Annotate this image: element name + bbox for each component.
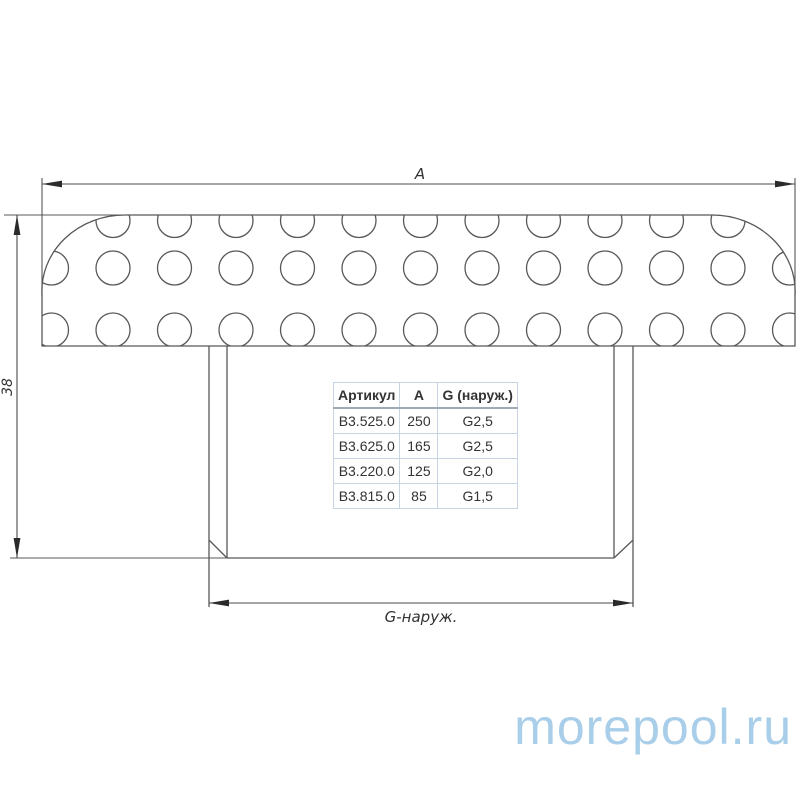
strainer-hole [527, 313, 561, 347]
table-cell: B3.625.0 [334, 434, 400, 459]
table-cell: B3.525.0 [334, 408, 400, 434]
dim-a-label: A [414, 165, 425, 183]
strainer-hole [588, 313, 622, 347]
strainer-hole [588, 251, 622, 285]
strainer-hole [711, 204, 745, 238]
strainer-hole [527, 204, 561, 238]
dim-38-extension-lines [4, 215, 227, 558]
table-row: B3.625.0165G2,5 [334, 434, 518, 459]
dim-38-label: 38 [0, 378, 16, 396]
strainer-hole [650, 251, 684, 285]
strainer-hole [281, 251, 315, 285]
table-header-cell: G (наруж.) [438, 383, 518, 409]
table-row: B3.525.0250G2,5 [334, 408, 518, 434]
strainer-hole [711, 313, 745, 347]
table-cell: G2,0 [438, 459, 518, 484]
table-cell: 250 [400, 408, 438, 434]
strainer-hole [35, 313, 69, 347]
table-row: B3.220.0125G2,0 [334, 459, 518, 484]
table-cell: G2,5 [438, 408, 518, 434]
dimensions-table: АртикулАG (наруж.) B3.525.0250G2,5B3.625… [333, 382, 518, 509]
dim-g-label: G-наруж. [385, 608, 458, 626]
strainer-holes-group [35, 204, 800, 348]
table-header-cell: Артикул [334, 383, 400, 409]
strainer-hole [96, 204, 130, 238]
table-body: B3.525.0250G2,5B3.625.0165G2,5B3.220.012… [334, 408, 518, 509]
strainer-hole [35, 204, 69, 238]
table-row: B3.815.085G1,5 [334, 484, 518, 509]
strainer-hole [342, 204, 376, 238]
strainer-hole [158, 204, 192, 238]
strainer-hole [342, 313, 376, 347]
strainer-hole [711, 251, 745, 285]
table-header-row: АртикулАG (наруж.) [334, 383, 518, 409]
table-header-cell: А [400, 383, 438, 409]
technical-drawing-page: A 38 G-наруж. АртикулАG (наруж.) B3.525.… [0, 0, 800, 800]
strainer-hole [773, 204, 800, 238]
strainer-hole [527, 251, 561, 285]
strainer-hole [219, 204, 253, 238]
strainer-hole [404, 251, 438, 285]
strainer-hole [158, 313, 192, 347]
strainer-hole [650, 204, 684, 238]
strainer-hole [219, 251, 253, 285]
strainer-hole [281, 313, 315, 347]
table-cell: G2,5 [438, 434, 518, 459]
watermark-text: morepool.ru [514, 697, 792, 757]
strainer-hole [342, 251, 376, 285]
strainer-hole [404, 204, 438, 238]
strainer-hole [465, 313, 499, 347]
table-cell: 125 [400, 459, 438, 484]
strainer-hole [219, 313, 253, 347]
table-cell: 165 [400, 434, 438, 459]
strainer-hole [158, 251, 192, 285]
strainer-hole [96, 251, 130, 285]
table-cell: G1,5 [438, 484, 518, 509]
strainer-hole [465, 204, 499, 238]
table-cell: 85 [400, 484, 438, 509]
strainer-hole [281, 204, 315, 238]
table-cell: B3.220.0 [334, 459, 400, 484]
strainer-plate-outline [42, 215, 795, 346]
strainer-hole [404, 313, 438, 347]
strainer-hole [96, 313, 130, 347]
strainer-hole [650, 313, 684, 347]
strainer-hole [588, 204, 622, 238]
strainer-hole [773, 313, 800, 347]
table-cell: B3.815.0 [334, 484, 400, 509]
strainer-hole [465, 251, 499, 285]
